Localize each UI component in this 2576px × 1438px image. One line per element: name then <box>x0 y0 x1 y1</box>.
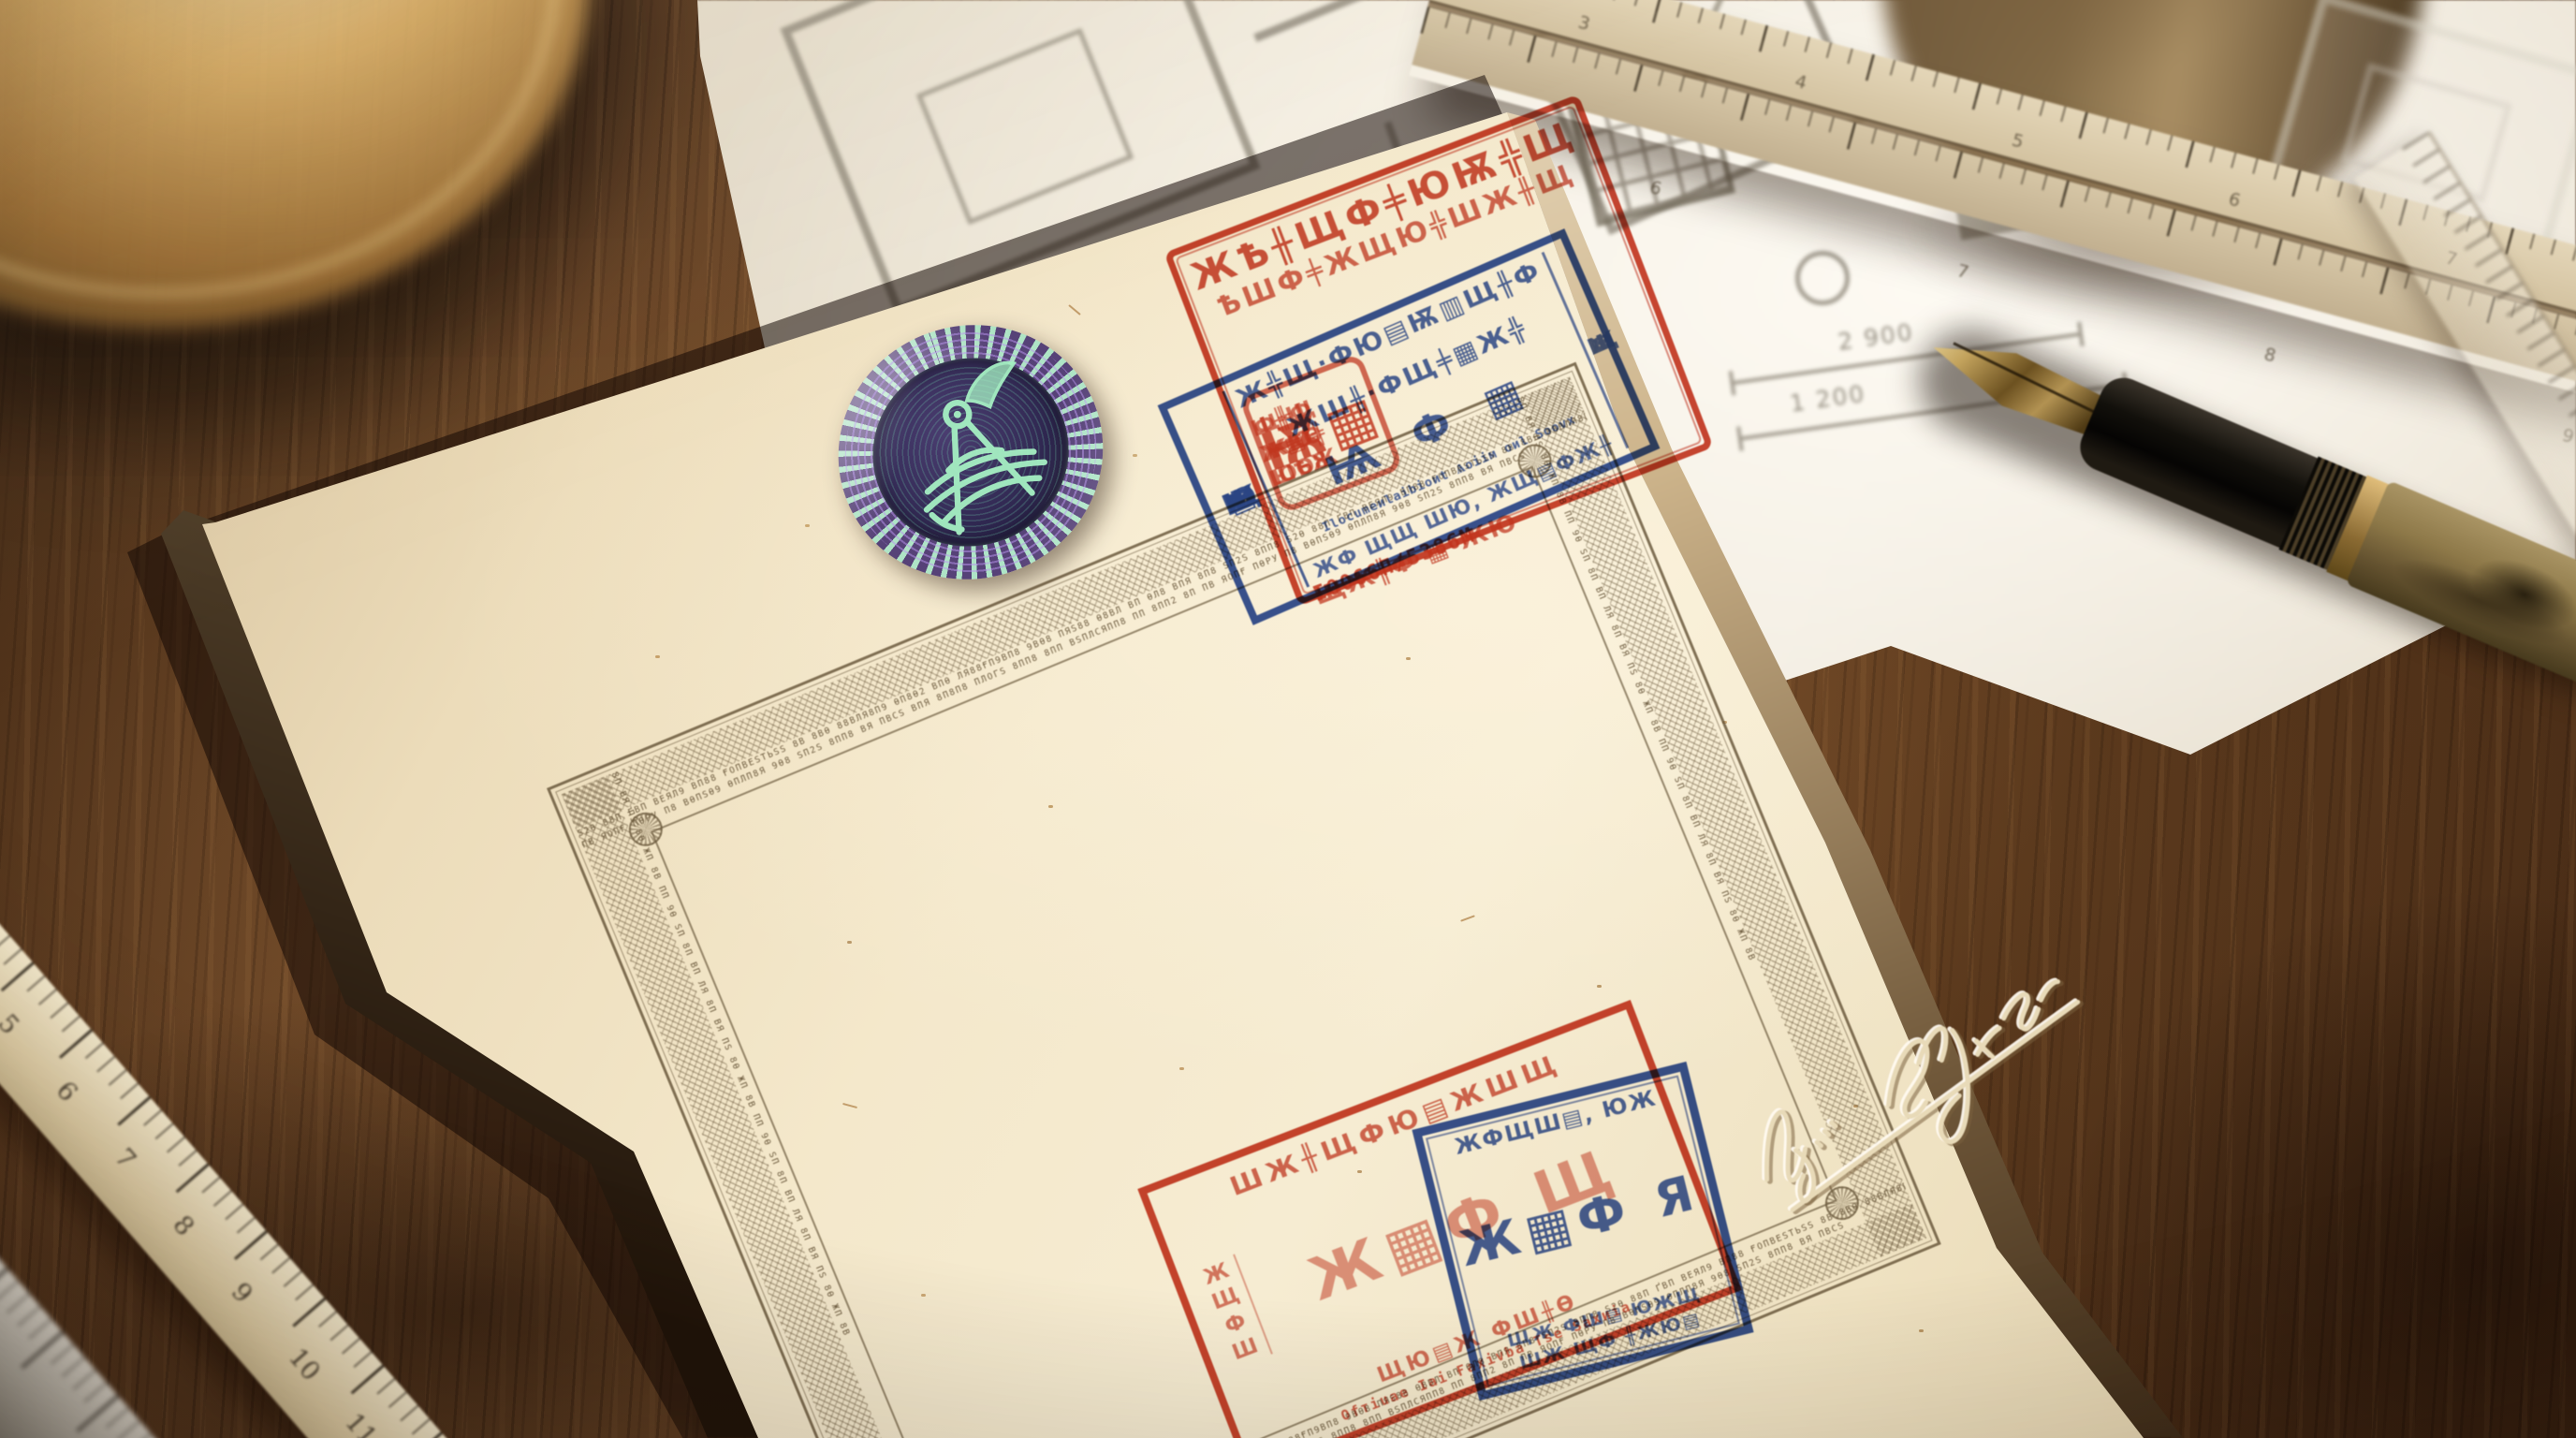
ruler-number: 5 <box>2010 129 2027 153</box>
dimension-tick <box>1729 371 1736 395</box>
wood-shadow-bottom-right <box>2059 889 2576 1438</box>
ruler-number: 7 <box>109 1143 141 1174</box>
ruler-number: 4 <box>1793 71 1809 95</box>
paper-fiber-fleck <box>1068 304 1081 315</box>
dimension-label: 1 200 <box>1788 380 1867 418</box>
ruler-number: 6 <box>2226 188 2243 212</box>
floor-plan-circle-symbol <box>1792 247 1853 309</box>
ruler-number: 6 <box>51 1076 83 1107</box>
desk-scene-photo: 2 900 1 200 3 4 5 6 7 8 6 7 8 9 <box>0 0 2576 1438</box>
ruler-number: 5 <box>0 1009 24 1040</box>
ruler-number: 8 <box>167 1211 199 1241</box>
ruler-number: 9 <box>226 1278 258 1309</box>
dimension-tick <box>1736 426 1744 450</box>
dimension-label: 2 900 <box>1837 318 1916 356</box>
ruler-number: 3 <box>1576 12 1593 36</box>
